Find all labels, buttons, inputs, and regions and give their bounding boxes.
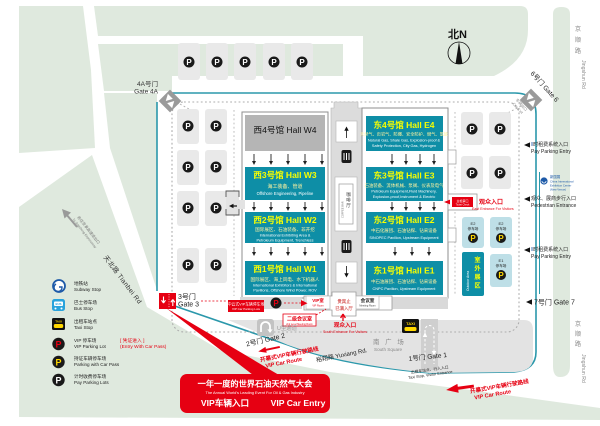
svg-text:Bus Stop: Bus Stop — [74, 306, 93, 311]
svg-text:东1号馆 Hall E1: 东1号馆 Hall E1 — [374, 266, 435, 276]
svg-text:路: 路 — [575, 340, 582, 348]
svg-text:P: P — [469, 125, 475, 134]
svg-text:International Exhibiting Area: International Exhibiting Area & — [260, 234, 311, 238]
svg-text:P: P — [497, 169, 503, 178]
svg-text:一年一度的世界石油天然气大会: 一年一度的世界石油天然气大会 — [198, 379, 313, 389]
svg-text:西2号馆 Hall W2: 西2号馆 Hall W2 — [253, 215, 317, 225]
svg-text:东2号馆 Hall E2: 东2号馆 Hall E2 — [374, 215, 435, 225]
svg-text:Ticket Check: Ticket Check — [456, 204, 471, 207]
svg-text:P: P — [271, 58, 277, 67]
svg-text:中云式VIP车辆停车场: 中云式VIP车辆停车场 — [228, 302, 265, 307]
svg-text:国际展区、海上风电、水下机器人: 国际展区、海上风电、水下机器人 — [251, 276, 320, 283]
svg-text:东3号馆 Hall E3: 东3号馆 Hall E3 — [374, 171, 435, 181]
svg-text:VIP室: VIP室 — [312, 297, 324, 304]
svg-text:3号门: 3号门 — [178, 292, 196, 301]
svg-text:出租车站点: 出租车站点 — [74, 318, 97, 325]
svg-text:VIP Room: VIP Room — [312, 305, 323, 308]
svg-text:P: P — [213, 163, 219, 172]
svg-text:石油装备、流体机械、泵阀、仪表及电气: 石油装备、流体机械、泵阀、仪表及电气 — [364, 182, 444, 189]
svg-text:P: P — [242, 58, 248, 67]
svg-text:P: P — [213, 122, 219, 131]
svg-text:South Entrance For Visitors: South Entrance For Visitors — [323, 330, 367, 334]
svg-text:VIP 停车场: VIP 停车场 — [74, 337, 97, 344]
svg-text:P: P — [185, 122, 191, 131]
svg-text:P: P — [213, 204, 219, 213]
svg-text:P: P — [470, 234, 476, 243]
svg-text:停车场: 停车场 — [496, 263, 507, 268]
svg-text:P: P — [185, 204, 191, 213]
svg-text:计时收费停车场: 计时收费停车场 — [74, 373, 107, 380]
svg-text:P: P — [185, 261, 191, 270]
svg-text:Natural Gas, Shale Gas, Explos: Natural Gas, Shale Gas, Explosion-proof … — [368, 139, 441, 143]
svg-text:区: 区 — [474, 282, 480, 290]
svg-text:北N: 北N — [448, 27, 467, 41]
svg-text:P: P — [497, 125, 503, 134]
svg-text:路: 路 — [575, 47, 582, 55]
svg-text:Pay Parking Entry: Pay Parking Entry — [531, 254, 572, 260]
svg-text:会议室: 会议室 — [360, 297, 375, 304]
svg-text:二级会议室: 二级会议室 — [287, 316, 312, 323]
svg-text:P: P — [469, 169, 475, 178]
svg-text:P: P — [55, 376, 61, 386]
svg-text:Jingshun Rd: Jingshun Rd — [580, 354, 586, 383]
svg-text:Petroleum Equipment, Trenchles: Petroleum Equipment, Trenchless — [257, 239, 314, 243]
svg-text:持证车辆停车场: 持证车辆停车场 — [74, 355, 107, 362]
svg-text:E2: E2 — [499, 221, 505, 226]
svg-text:西4号馆 Hall W4: 西4号馆 Hall W4 — [253, 124, 316, 135]
svg-text:外: 外 — [473, 265, 480, 273]
svg-text:South Square: South Square — [374, 347, 403, 352]
svg-text:VIP Car Parking Lots: VIP Car Parking Lots — [232, 307, 260, 311]
svg-text:已满入厅: 已满入厅 — [335, 305, 353, 312]
svg-text:室: 室 — [474, 256, 480, 264]
svg-text:Subway Stop: Subway Stop — [74, 287, 102, 292]
svg-text:P: P — [214, 58, 220, 67]
svg-text:Petroleum Equipment,Fluid Mach: Petroleum Equipment,Fluid Machinery, — [371, 190, 436, 194]
svg-text:Pay Parking Lots: Pay Parking Lots — [74, 380, 109, 385]
svg-text:4A号门: 4A号门 — [137, 79, 158, 88]
svg-text:观众入口: 观众入口 — [479, 198, 503, 206]
svg-text:厅: 厅 — [346, 203, 351, 208]
svg-text:京: 京 — [575, 320, 581, 328]
svg-text:E1: E1 — [499, 258, 505, 263]
svg-text:天然气、页岩气、防爆、安全防护、燃气、氢能: 天然气、页岩气、防爆、安全防护、燃气、氢能 — [360, 131, 449, 138]
svg-text:Explosion-proof,Instrument & E: Explosion-proof,Instrument & Electric — [373, 195, 436, 199]
svg-text:P: P — [55, 340, 61, 350]
svg-text:停车场: 停车场 — [468, 226, 479, 231]
svg-text:Safety Protection, City Gas, H: Safety Protection, City Gas, Hydrogen — [372, 144, 436, 148]
svg-text:贵宾止: 贵宾止 — [337, 298, 351, 305]
svg-text:P: P — [185, 163, 191, 172]
svg-text:The Annual World's Leading Eve: The Annual World's Leading Event For Oil… — [205, 390, 304, 395]
svg-text:展: 展 — [474, 273, 480, 281]
svg-text:主检票口: 主检票口 — [456, 198, 468, 203]
svg-text:顺: 顺 — [575, 331, 581, 338]
svg-text:P: P — [273, 299, 279, 308]
svg-text:‖时租费系统入口: ‖时租费系统入口 — [531, 246, 568, 253]
svg-text:Pay Parking Entry: Pay Parking Entry — [531, 149, 572, 155]
svg-text:地铁站: 地铁站 — [74, 280, 88, 287]
svg-text:南 广 场: 南 广 场 — [373, 337, 406, 346]
svg-text:‖时租费系统入口: ‖时租费系统入口 — [531, 141, 568, 148]
svg-text:BUS: BUS — [56, 302, 62, 306]
svg-text:TAXI: TAXI — [55, 320, 62, 324]
svg-text:P: P — [186, 58, 192, 67]
svg-text:停车场: 停车场 — [496, 226, 507, 231]
svg-text:海工装备、管道: 海工装备、管道 — [267, 183, 302, 190]
svg-text:P: P — [55, 358, 61, 368]
svg-text:[ 凭证进入 ]: [ 凭证进入 ] — [120, 337, 145, 344]
svg-text:(Entry With Car Pass): (Entry With Car Pass) — [120, 344, 167, 350]
svg-text:国际展区、石油装备、非开挖: 国际展区、石油装备、非开挖 — [255, 226, 315, 233]
svg-text:TAXI: TAXI — [406, 321, 415, 326]
svg-text:Offshore Engineering, Pipeline: Offshore Engineering, Pipeline — [257, 191, 314, 196]
svg-text:VIP Parking Lot: VIP Parking Lot — [74, 344, 107, 349]
svg-text:East Entrance For Visitors: East Entrance For Visitors — [472, 207, 514, 211]
svg-text:新国展: 新国展 — [550, 174, 561, 179]
svg-text:西3号馆 Hall W3: 西3号馆 Hall W3 — [253, 170, 317, 180]
svg-text:顺: 顺 — [575, 37, 581, 44]
svg-text:观众、展商步行入口: 观众、展商步行入口 — [531, 195, 576, 202]
svg-text:中石油展团、石油钻探、钻采设备: 中石油展团、石油钻探、钻采设备 — [371, 278, 437, 285]
svg-text:Jingshun Rd: Jingshun Rd — [580, 60, 586, 89]
svg-text:International Exhibitors & Int: International Exhibitors & International — [253, 284, 317, 288]
svg-text:Gate 3: Gate 3 — [178, 302, 199, 309]
svg-text:Gate 4A: Gate 4A — [134, 89, 159, 96]
svg-text:东4号馆 Hall E4: 东4号馆 Hall E4 — [374, 120, 435, 130]
svg-text:7号门 Gate 7: 7号门 Gate 7 — [534, 298, 575, 307]
svg-text:Pedestrian Entrance: Pedestrian Entrance — [531, 203, 577, 209]
svg-text:VIP Car Entry: VIP Car Entry — [271, 398, 326, 408]
svg-text:(New Venue): (New Venue) — [550, 188, 566, 192]
svg-text:P: P — [498, 234, 504, 243]
svg-text:Pavilions, Offshore Wind Power: Pavilions, Offshore Wind Power, ROV — [253, 289, 317, 293]
svg-text:Parking with Car Pass: Parking with Car Pass — [74, 362, 120, 367]
svg-text:CNPC Pavilion, Upstream Equipm: CNPC Pavilion, Upstream Equipment — [373, 287, 437, 291]
svg-text:京: 京 — [575, 25, 581, 33]
svg-text:西1号馆 Hall W1: 西1号馆 Hall W1 — [253, 264, 317, 274]
svg-text:巴士停车场: 巴士停车场 — [74, 299, 97, 306]
svg-text:P: P — [299, 58, 305, 67]
svg-text:U型通道: U型通道 — [277, 324, 298, 332]
svg-text:Outdoor Area: Outdoor Area — [466, 271, 470, 291]
svg-text:Taxi Stop: Taxi Stop — [74, 325, 93, 330]
svg-text:COFFEE BAR: COFFEE BAR — [341, 201, 345, 218]
svg-text:E2: E2 — [471, 221, 477, 226]
svg-text:Meeting Room: Meeting Room — [359, 305, 375, 308]
svg-text:VIP车辆入口: VIP车辆入口 — [201, 397, 249, 408]
svg-text:P: P — [213, 261, 219, 270]
svg-text:P: P — [498, 271, 504, 280]
svg-text:SINOPEC Pavilion, Upstream Equ: SINOPEC Pavilion, Upstream Equipment — [369, 236, 439, 240]
svg-text:观众入口: 观众入口 — [334, 321, 357, 329]
svg-text:中石化展团、石油钻探、钻采设备: 中石化展团、石油钻探、钻采设备 — [371, 227, 437, 234]
